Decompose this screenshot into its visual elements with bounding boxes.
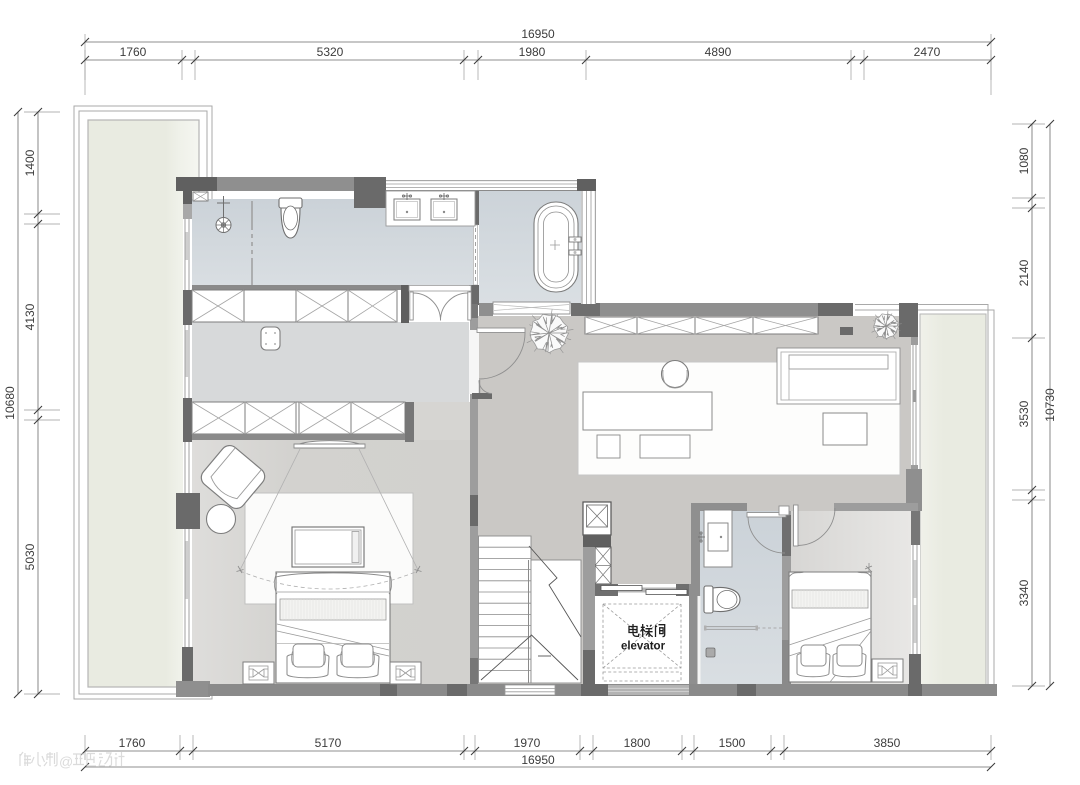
svg-text:@: @ [59,754,73,770]
svg-text:1760: 1760 [119,736,146,750]
svg-text:1400: 1400 [23,149,37,176]
svg-text:10730: 10730 [1043,388,1057,422]
svg-text:2140: 2140 [1017,259,1031,286]
svg-text:1800: 1800 [624,736,651,750]
svg-text:1970: 1970 [514,736,541,750]
svg-text:elevator: elevator [621,641,666,653]
svg-text:16950: 16950 [521,27,555,41]
svg-text:1980: 1980 [519,45,546,59]
svg-text:5030: 5030 [23,543,37,570]
svg-text:3530: 3530 [1017,400,1031,427]
svg-text:1760: 1760 [120,45,147,59]
svg-text:3850: 3850 [874,736,901,750]
svg-text:4130: 4130 [23,303,37,330]
svg-text:5170: 5170 [315,736,342,750]
svg-text:1500: 1500 [719,736,746,750]
svg-text:5320: 5320 [317,45,344,59]
svg-text:1080: 1080 [1017,147,1031,174]
svg-text:10680: 10680 [3,386,17,420]
svg-text:16950: 16950 [521,753,555,767]
svg-text:4890: 4890 [705,45,732,59]
svg-text:3340: 3340 [1017,579,1031,606]
svg-text:2470: 2470 [914,45,941,59]
